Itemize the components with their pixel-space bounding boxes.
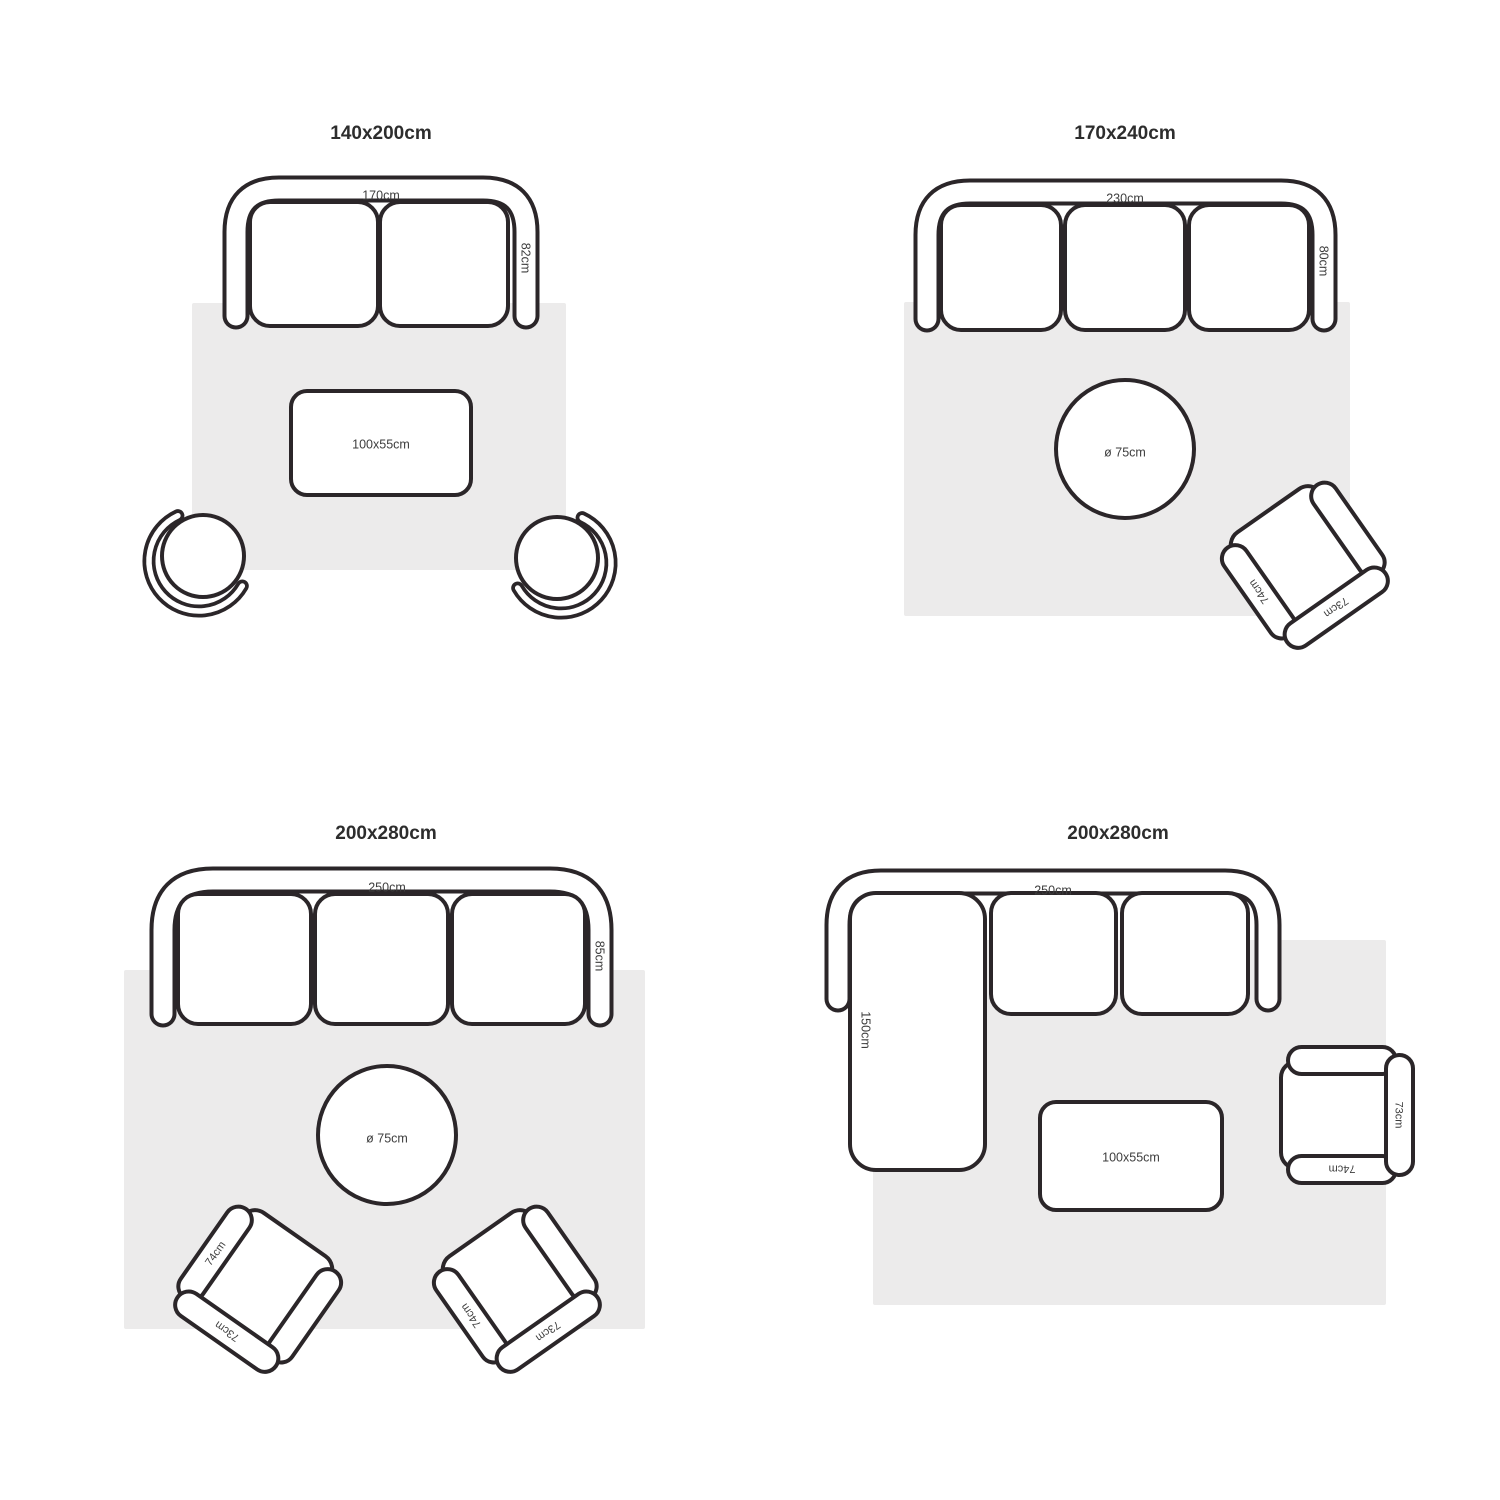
rug-size-guide-canvas: 140x200cm 170cm 82cm 100x55cm 170x240cm bbox=[0, 0, 1500, 1500]
sofa-cushion bbox=[178, 894, 311, 1024]
sofa-width-label: 250cm bbox=[368, 880, 406, 894]
round-table: ø 75cm bbox=[318, 1066, 456, 1204]
round-table: ø 75cm bbox=[1056, 380, 1194, 518]
sofa-two-seat: 170cm 82cm bbox=[236, 188, 533, 326]
chaise-depth-label: 150cm bbox=[859, 1011, 873, 1049]
layout-200x280-armchairs: 200x280cm 250cm 85cm ø 75cm 74cm 73cm bbox=[124, 823, 645, 1382]
armchair-back-label: 73cm bbox=[1393, 1102, 1405, 1129]
sofa-cushion bbox=[452, 894, 585, 1024]
armchair-side-label: 74cm bbox=[1329, 1163, 1356, 1175]
coffee-table: 100x55cm bbox=[291, 391, 471, 495]
armchair-seat bbox=[1281, 1062, 1388, 1169]
layout-title: 140x200cm bbox=[330, 123, 431, 144]
round-table-label: ø 75cm bbox=[1104, 445, 1146, 459]
sofa-depth-label: 85cm bbox=[593, 941, 607, 972]
tub-chair-seat bbox=[162, 515, 244, 597]
layout-140x200: 140x200cm 170cm 82cm 100x55cm bbox=[149, 123, 611, 613]
sofa-three-seat: 230cm 80cm bbox=[927, 191, 1331, 330]
sofa-width-label: 250cm bbox=[1034, 883, 1072, 897]
sofa-cushion bbox=[941, 205, 1061, 330]
sofa-width-label: 170cm bbox=[362, 188, 400, 202]
armchair: 74cm 73cm bbox=[1281, 1047, 1413, 1183]
sofa-cushion bbox=[1065, 205, 1185, 330]
sofa-depth-label: 80cm bbox=[1317, 246, 1331, 277]
coffee-table: 100x55cm bbox=[1040, 1102, 1222, 1210]
tub-chair-left bbox=[149, 515, 244, 611]
sofa-cushion bbox=[1122, 893, 1248, 1014]
coffee-table-label: 100x55cm bbox=[352, 437, 410, 451]
layout-200x280-sectional: 200x280cm 250cm 150cm 100x55cm 74cm 73cm bbox=[838, 823, 1413, 1305]
layout-title: 170x240cm bbox=[1074, 123, 1175, 144]
sofa-depth-label: 82cm bbox=[519, 243, 533, 274]
layout-title: 200x280cm bbox=[335, 823, 436, 844]
layout-title: 200x280cm bbox=[1067, 823, 1168, 844]
sofa-cushion bbox=[315, 894, 448, 1024]
layout-170x240: 170x240cm 230cm 80cm ø 75cm 74cm 73cm bbox=[904, 123, 1400, 658]
coffee-table-label: 100x55cm bbox=[1102, 1150, 1160, 1164]
sofa-cushion bbox=[1189, 205, 1309, 330]
sofa-width-label: 230cm bbox=[1106, 191, 1144, 205]
sofa-cushion bbox=[991, 893, 1116, 1014]
sofa-cushion bbox=[380, 202, 508, 326]
tub-chair-right bbox=[516, 517, 611, 613]
sofa-cushion bbox=[250, 202, 378, 326]
sofa-three-seat: 250cm 85cm bbox=[163, 880, 607, 1024]
round-table-label: ø 75cm bbox=[366, 1131, 408, 1145]
armchair-armrest-right bbox=[1288, 1047, 1396, 1074]
tub-chair-seat bbox=[516, 517, 598, 599]
rug-size-guide: 140x200cm 170cm 82cm 100x55cm 170x240cm bbox=[0, 0, 1500, 1500]
